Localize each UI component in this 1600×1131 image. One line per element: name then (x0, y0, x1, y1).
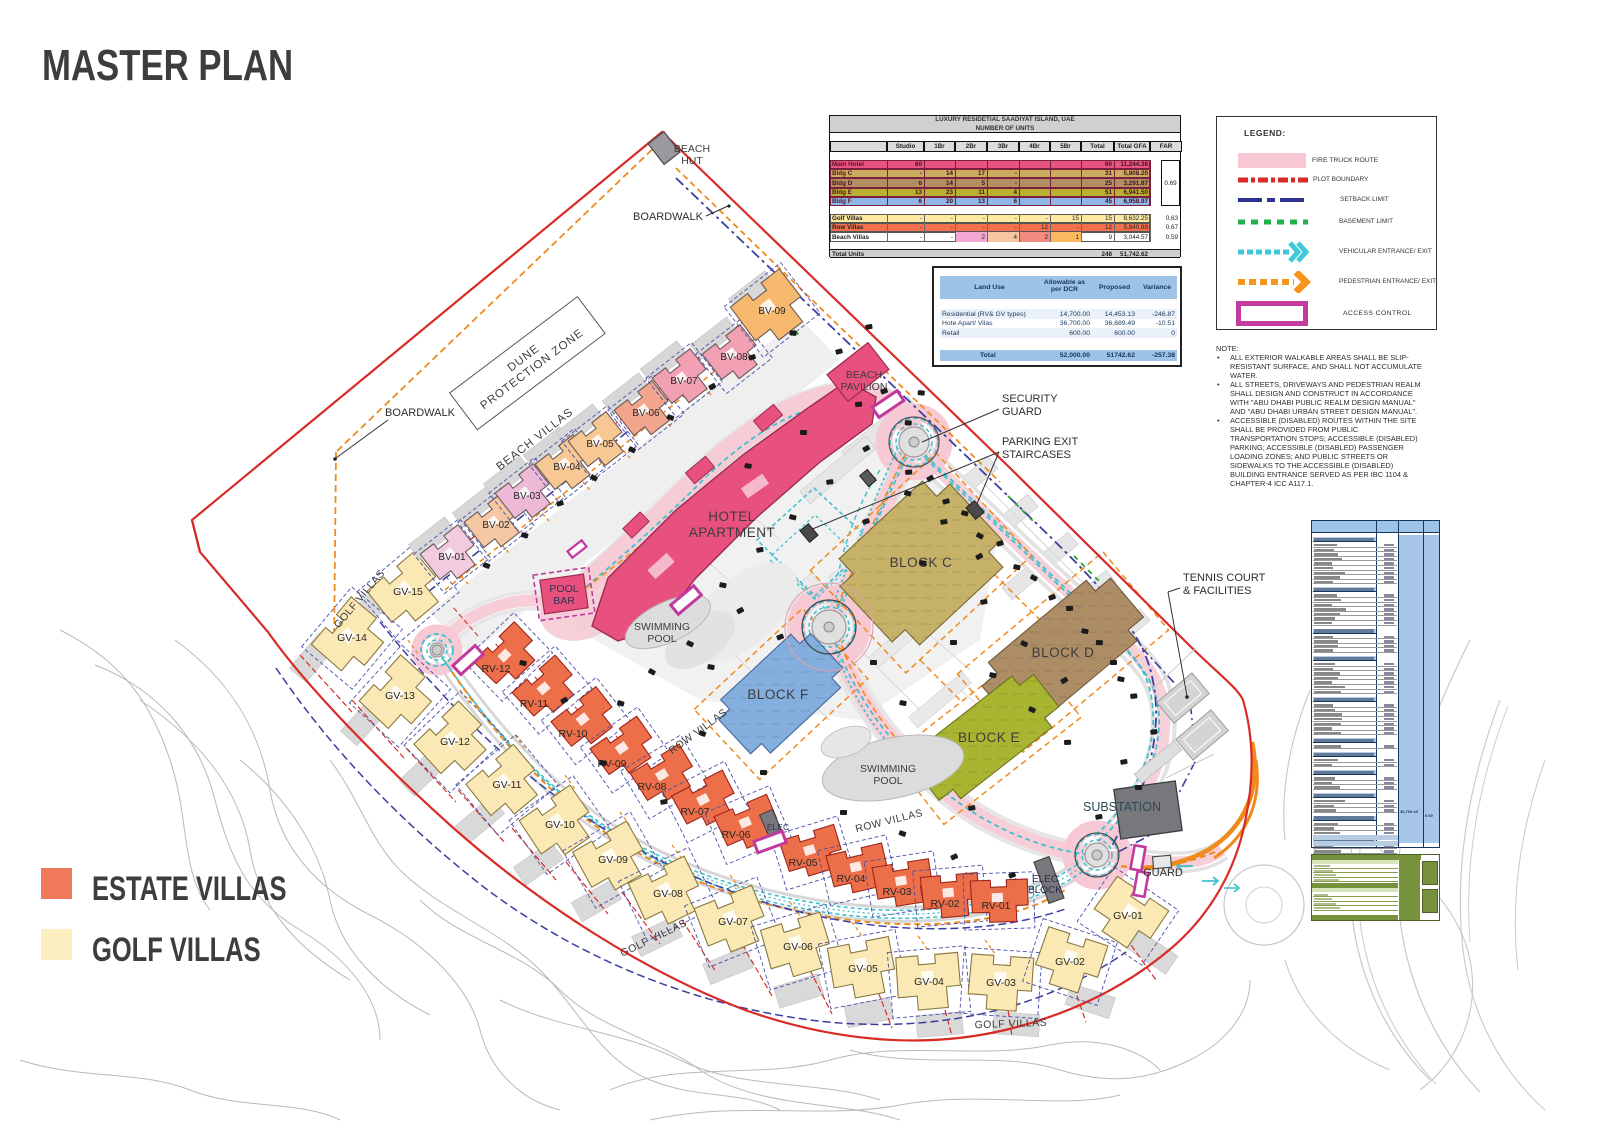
svg-text:BV-06: BV-06 (632, 408, 660, 419)
svg-text:GV-04: GV-04 (914, 976, 944, 988)
svg-text:RV-08: RV-08 (638, 781, 667, 793)
svg-text:APARTMENT: APARTMENT (689, 525, 776, 540)
svg-text:RV-02: RV-02 (931, 898, 960, 910)
svg-text:TENNIS COURT: TENNIS COURT (1183, 572, 1266, 584)
svg-text:RV-04: RV-04 (837, 873, 866, 885)
svg-text:GUARD: GUARD (1002, 406, 1042, 418)
svg-text:GV-11: GV-11 (493, 779, 522, 791)
svg-text:BLOCK D: BLOCK D (1032, 645, 1095, 660)
svg-text:BV-01: BV-01 (438, 552, 466, 563)
svg-text:BLOCK F: BLOCK F (747, 687, 808, 702)
svg-text:GV-10: GV-10 (545, 819, 575, 831)
svg-text:ELEC: ELEC (1032, 874, 1058, 885)
svg-text:RV-12: RV-12 (482, 663, 511, 675)
svg-text:BV-09: BV-09 (758, 306, 786, 317)
svg-text:PAVILION: PAVILION (841, 381, 888, 393)
svg-text:& FACILITIES: & FACILITIES (1183, 585, 1251, 597)
svg-text:GV-15: GV-15 (393, 586, 423, 598)
svg-text:GV-05: GV-05 (848, 963, 878, 975)
svg-text:GV-14: GV-14 (337, 632, 367, 644)
svg-text:RV-01: RV-01 (982, 900, 1011, 912)
svg-text:BV-08: BV-08 (720, 352, 748, 363)
svg-text:POOL: POOL (873, 775, 902, 787)
svg-text:BV-05: BV-05 (586, 439, 614, 450)
svg-text:SUBSTATION: SUBSTATION (1083, 800, 1161, 814)
svg-text:RV-03: RV-03 (883, 886, 912, 898)
svg-text:BLOCK E: BLOCK E (958, 730, 1020, 745)
svg-text:RV-05: RV-05 (789, 857, 818, 869)
svg-text:BEACH: BEACH (846, 369, 882, 381)
svg-text:RV-10: RV-10 (559, 728, 588, 740)
svg-text:GV-08: GV-08 (653, 888, 683, 900)
svg-text:GV-02: GV-02 (1055, 956, 1085, 968)
svg-text:GV-07: GV-07 (718, 916, 748, 928)
svg-text:GUARD: GUARD (1143, 867, 1183, 879)
svg-text:POOL: POOL (647, 633, 676, 645)
svg-text:RV-07: RV-07 (681, 806, 710, 818)
svg-text:RV-11: RV-11 (520, 698, 548, 710)
svg-text:ROW VILLAS: ROW VILLAS (854, 807, 924, 835)
svg-text:HUT: HUT (681, 155, 703, 167)
svg-text:RV-06: RV-06 (722, 829, 751, 841)
svg-text:BEACH: BEACH (674, 143, 710, 155)
svg-text:GV-09: GV-09 (598, 854, 628, 866)
svg-text:GV-03: GV-03 (986, 977, 1016, 989)
svg-text:PARKING EXIT: PARKING EXIT (1002, 436, 1078, 448)
svg-text:SECURITY: SECURITY (1002, 393, 1058, 405)
svg-text:GOLF VILLAS: GOLF VILLAS (974, 1017, 1047, 1032)
svg-text:BV-04: BV-04 (553, 462, 581, 473)
svg-text:GV-06: GV-06 (783, 941, 813, 953)
svg-text:SWIMMING: SWIMMING (634, 621, 690, 633)
svg-text:GV-01: GV-01 (1113, 910, 1143, 922)
svg-text:HOTEL: HOTEL (708, 509, 756, 524)
svg-text:BOARDWALK: BOARDWALK (633, 211, 704, 223)
svg-text:BV-02: BV-02 (482, 520, 510, 531)
svg-text:SWIMMING: SWIMMING (860, 763, 916, 775)
svg-text:POOL: POOL (549, 583, 578, 595)
svg-text:BAR: BAR (553, 595, 575, 607)
svg-text:GV-13: GV-13 (385, 690, 415, 702)
svg-text:BLOCK: BLOCK (1028, 885, 1062, 896)
svg-text:BV-03: BV-03 (513, 491, 541, 502)
svg-text:BV-07: BV-07 (670, 376, 698, 387)
svg-text:ELEC: ELEC (767, 822, 789, 832)
svg-text:STAIRCASES: STAIRCASES (1002, 449, 1071, 461)
svg-text:GV-12: GV-12 (440, 736, 470, 748)
svg-text:BOARDWALK: BOARDWALK (385, 407, 456, 419)
